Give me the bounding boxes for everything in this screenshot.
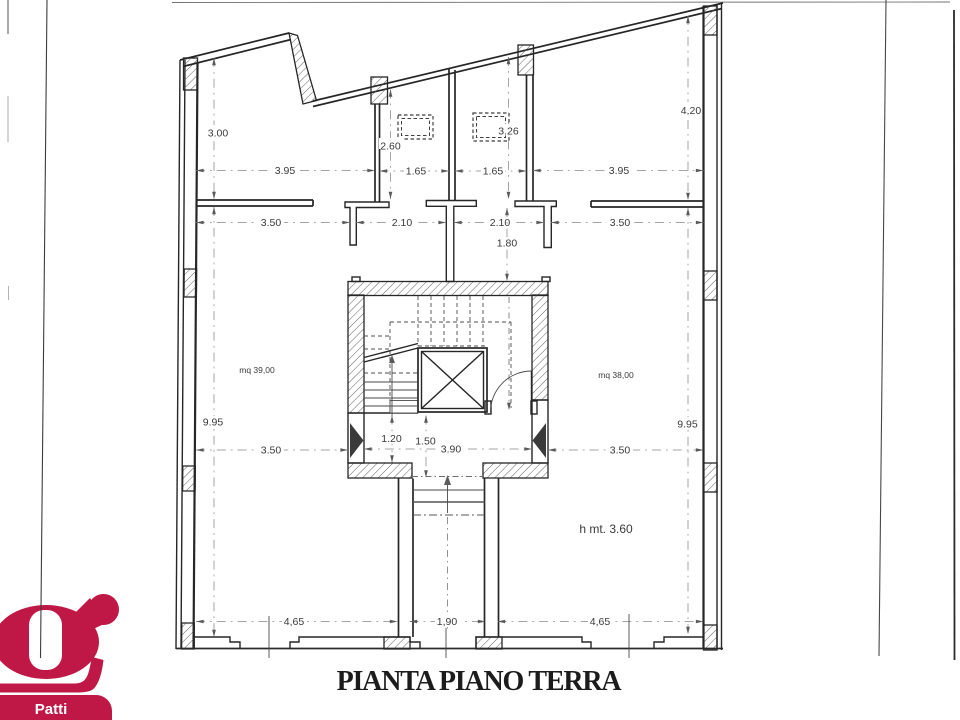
svg-text:2.10: 2.10 [392, 217, 413, 229]
svg-text:3.50: 3.50 [610, 217, 631, 229]
svg-text:4,65: 4,65 [284, 616, 305, 628]
svg-text:1.65: 1.65 [406, 166, 427, 178]
svg-text:1.65: 1.65 [483, 166, 504, 178]
svg-text:Patti: Patti [35, 701, 68, 718]
svg-text:mq 38,00: mq 38,00 [598, 370, 634, 380]
svg-text:2.60: 2.60 [380, 141, 401, 153]
svg-text:3.90: 3.90 [441, 444, 462, 456]
svg-text:3.95: 3.95 [609, 165, 630, 177]
svg-text:1,90: 1,90 [437, 616, 458, 628]
svg-text:9.95: 9.95 [203, 417, 224, 429]
svg-text:1.80: 1.80 [497, 238, 518, 250]
svg-text:1.50: 1.50 [415, 436, 436, 448]
svg-text:3.00: 3.00 [208, 128, 229, 140]
svg-text:9.95: 9.95 [677, 419, 698, 431]
svg-text:3.50: 3.50 [261, 217, 282, 229]
svg-text:4,65: 4,65 [590, 616, 611, 628]
svg-text:3.26: 3.26 [498, 126, 519, 138]
svg-text:mq 39,00: mq 39,00 [239, 365, 275, 375]
svg-text:1.20: 1.20 [381, 433, 402, 445]
svg-text:4.20: 4.20 [681, 105, 702, 117]
svg-text:3.95: 3.95 [275, 165, 296, 177]
svg-text:3.50: 3.50 [261, 445, 282, 457]
svg-text:3.50: 3.50 [610, 445, 631, 457]
svg-text:PIANTA PIANO TERRA: PIANTA PIANO TERRA [337, 666, 623, 697]
svg-text:h mt. 3.60: h mt. 3.60 [579, 522, 633, 536]
